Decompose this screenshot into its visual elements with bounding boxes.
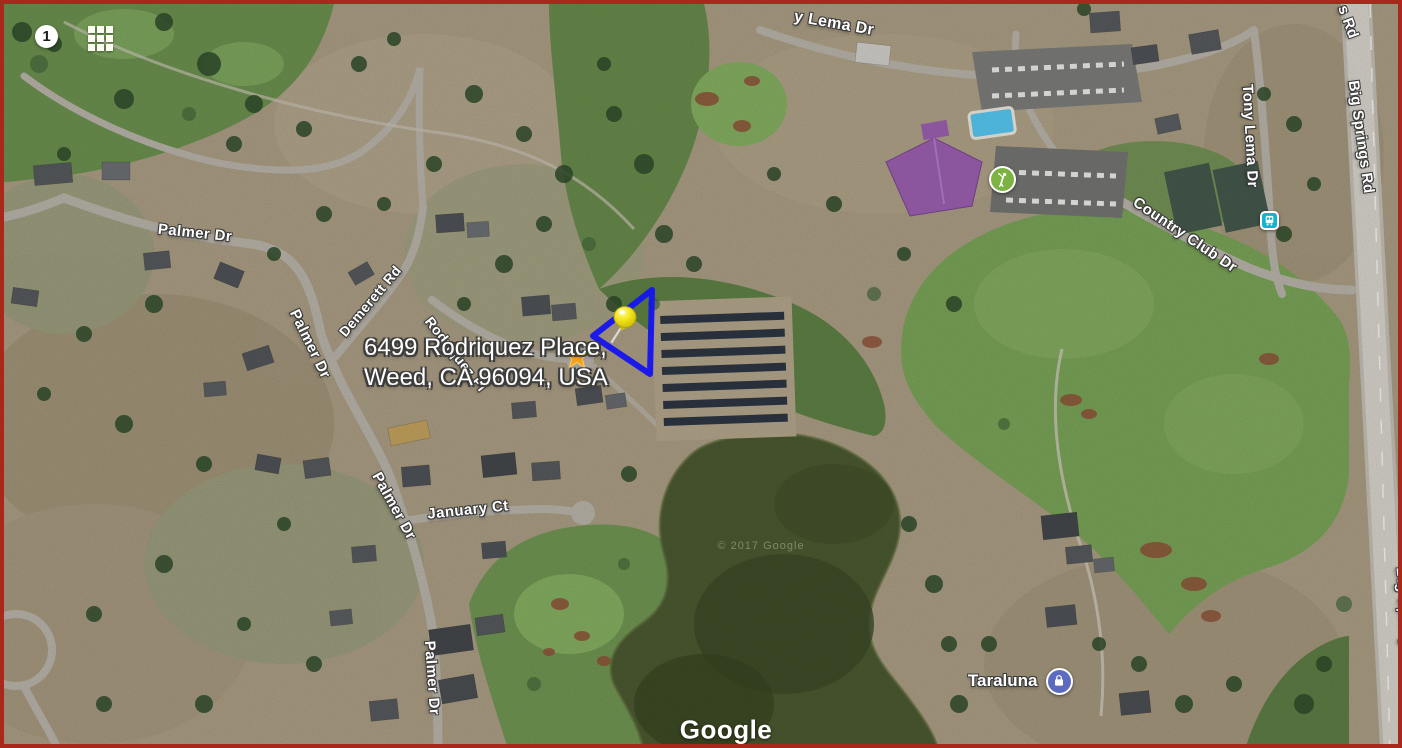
taraluna-lodging-label[interactable]: Taraluna bbox=[968, 671, 1038, 691]
taraluna-lodging-icon[interactable] bbox=[1046, 668, 1073, 695]
address-line2: Weed, CA 96094, USA bbox=[364, 363, 574, 393]
imagery-copyright: © 2017 Google bbox=[717, 540, 804, 552]
golf-course-icon[interactable] bbox=[989, 166, 1016, 193]
map-canvas[interactable]: Palmer DrDemerett RdRodriquez PlPalmer D… bbox=[0, 0, 1402, 748]
address-line1: 6499 Rodriquez Place, bbox=[364, 333, 574, 363]
bus-stop-icon[interactable] bbox=[1260, 211, 1279, 230]
google-watermark: Google bbox=[680, 715, 773, 746]
page-number-badge: 1 bbox=[35, 25, 58, 48]
apps-grid-icon[interactable] bbox=[88, 26, 113, 51]
address-callout: 6499 Rodriquez Place, Weed, CA 96094, US… bbox=[364, 333, 574, 393]
satellite-imagery bbox=[4, 4, 1402, 748]
